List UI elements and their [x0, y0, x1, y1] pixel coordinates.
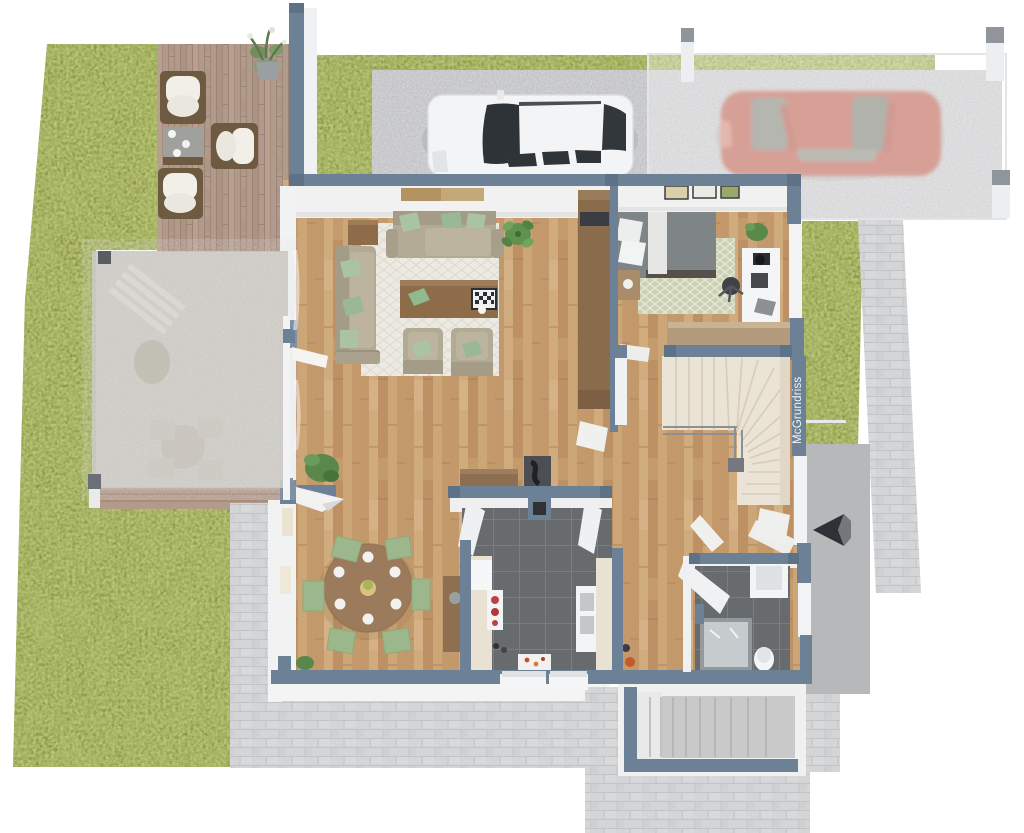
svg-text:McGrundriss: McGrundriss	[792, 377, 804, 444]
